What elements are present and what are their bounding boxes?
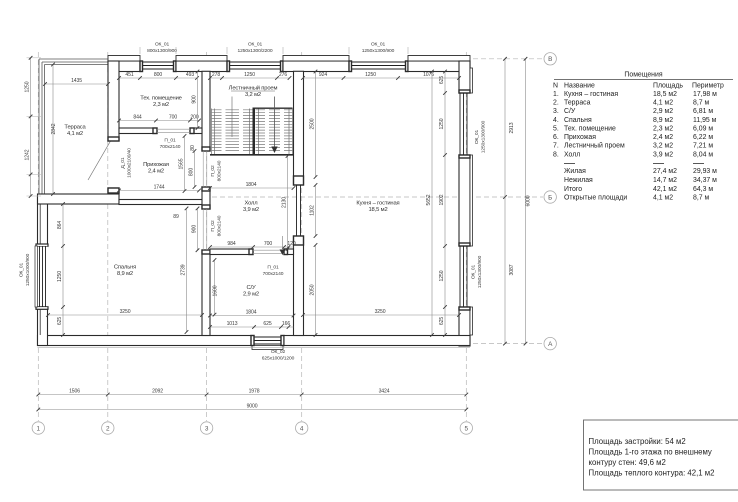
svg-text:844: 844 (133, 115, 141, 121)
svg-text:А: А (548, 341, 553, 348)
svg-text:3: 3 (205, 425, 209, 432)
svg-text:700: 700 (264, 241, 272, 247)
svg-text:1435: 1435 (71, 78, 82, 84)
svg-text:Кухня – гостиная: Кухня – гостиная (356, 201, 399, 207)
svg-text:2,9 м2: 2,9 м2 (653, 108, 673, 115)
svg-text:700: 700 (169, 115, 177, 121)
svg-text:2,3 м2: 2,3 м2 (153, 102, 169, 108)
svg-text:1242: 1242 (25, 149, 31, 160)
svg-text:1250х1300/2200: 1250х1300/2200 (237, 48, 272, 54)
svg-text:Площадь теплого контура: 42,1: Площадь теплого контура: 42,1 м2 (589, 469, 715, 478)
svg-text:1565: 1565 (179, 158, 185, 169)
svg-text:6.: 6. (553, 134, 559, 141)
svg-text:Нежилая: Нежилая (564, 177, 593, 184)
svg-text:29,93 м: 29,93 м (693, 168, 717, 175)
svg-text:1250: 1250 (57, 271, 63, 282)
svg-text:14,7 м2: 14,7 м2 (653, 177, 677, 184)
svg-text:1902: 1902 (439, 194, 445, 205)
svg-text:П_02: П_02 (210, 220, 216, 232)
svg-text:1250: 1250 (244, 72, 255, 78)
svg-text:1804: 1804 (246, 310, 257, 316)
svg-text:Холл: Холл (564, 151, 580, 158)
svg-text:4,1 м2: 4,1 м2 (653, 100, 673, 107)
svg-text:Площадь: Площадь (653, 83, 683, 90)
svg-text:27,4 м2: 27,4 м2 (653, 168, 677, 175)
svg-text:2,9 м2: 2,9 м2 (243, 292, 259, 298)
svg-text:900: 900 (192, 95, 198, 103)
svg-text:N: N (553, 83, 558, 90)
svg-text:1250х1000/900: 1250х1000/900 (25, 253, 31, 286)
svg-text:Б: Б (548, 194, 552, 201)
svg-text:8.: 8. (553, 151, 559, 158)
svg-text:11,95 м: 11,95 м (693, 117, 717, 124)
svg-text:2: 2 (106, 425, 110, 432)
svg-text:3424: 3424 (379, 389, 390, 395)
svg-text:3,2 м2: 3,2 м2 (245, 92, 261, 98)
svg-text:1.: 1. (553, 91, 559, 98)
svg-text:9000: 9000 (247, 404, 258, 410)
svg-text:6,09 м: 6,09 м (693, 125, 713, 132)
svg-text:864: 864 (57, 221, 63, 229)
svg-text:ОК_02: ОК_02 (271, 349, 286, 355)
svg-text:Д_01: Д_01 (120, 157, 126, 168)
svg-text:4.: 4. (553, 117, 559, 124)
svg-text:1250: 1250 (365, 72, 376, 78)
svg-text:6,81 м: 6,81 м (693, 108, 713, 115)
svg-text:Итого: Итого (564, 186, 582, 193)
svg-text:18,5 м2: 18,5 м2 (653, 91, 677, 98)
svg-text:1250х1300/900: 1250х1300/900 (481, 120, 487, 153)
svg-text:1013: 1013 (227, 321, 238, 327)
svg-text:4,1 м2: 4,1 м2 (653, 195, 673, 202)
svg-text:1250: 1250 (439, 270, 445, 281)
svg-text:Кухня – гостиная: Кухня – гостиная (564, 91, 618, 98)
svg-text:6,22 м: 6,22 м (693, 134, 713, 141)
svg-text:1250х1300/900: 1250х1300/900 (362, 48, 395, 54)
svg-text:42,1 м2: 42,1 м2 (653, 186, 677, 193)
svg-text:Площадь 1-го этажа по внешнему: Площадь 1-го этажа по внешнему (589, 448, 712, 457)
svg-text:1804: 1804 (246, 182, 257, 188)
svg-text:625: 625 (439, 317, 445, 325)
svg-text:1102: 1102 (310, 205, 316, 216)
svg-text:2,4 м2: 2,4 м2 (148, 169, 164, 175)
svg-text:800: 800 (154, 72, 162, 78)
svg-text:Холл: Холл (244, 201, 257, 207)
svg-text:Терраса: Терраса (564, 100, 591, 107)
svg-text:Прихожая: Прихожая (564, 134, 596, 141)
svg-text:П_01: П_01 (164, 138, 176, 144)
svg-text:625: 625 (57, 317, 63, 325)
svg-text:Жилая: Жилая (564, 168, 586, 175)
svg-text:Лестничный проем: Лестничный проем (564, 142, 625, 150)
svg-text:1744: 1744 (154, 185, 165, 191)
svg-text:4: 4 (300, 425, 304, 432)
svg-text:Помещения: Помещения (624, 72, 662, 79)
svg-text:89: 89 (173, 214, 179, 220)
svg-text:800х2140: 800х2140 (217, 160, 223, 181)
svg-text:2130: 2130 (282, 197, 288, 208)
svg-text:2913: 2913 (509, 122, 515, 133)
svg-text:ОК_01: ОК_01 (248, 42, 263, 48)
svg-text:1600: 1600 (213, 285, 219, 296)
svg-text:1: 1 (37, 425, 41, 432)
svg-text:1250: 1250 (25, 81, 31, 92)
svg-text:18,5 м2: 18,5 м2 (368, 207, 387, 213)
svg-text:5: 5 (465, 425, 469, 432)
svg-text:ОК_01: ОК_01 (371, 42, 386, 48)
svg-text:924: 924 (319, 72, 327, 78)
svg-text:1250х1300/900: 1250х1300/900 (477, 255, 483, 288)
svg-text:3250: 3250 (375, 309, 386, 315)
svg-text:Тех. помещение: Тех. помещение (564, 125, 616, 132)
svg-text:278: 278 (212, 72, 220, 78)
svg-text:800х1300/900: 800х1300/900 (147, 48, 177, 54)
svg-text:2739: 2739 (181, 264, 187, 275)
svg-text:С/У: С/У (564, 108, 576, 115)
svg-text:Название: Название (564, 83, 595, 90)
svg-text:В: В (548, 56, 552, 63)
svg-text:900: 900 (192, 225, 198, 233)
svg-text:8,7 м: 8,7 м (693, 100, 709, 107)
svg-text:Тех. помещение: Тех. помещение (140, 96, 182, 102)
svg-text:276: 276 (279, 72, 287, 78)
svg-text:80: 80 (190, 145, 196, 151)
svg-text:34,37 м: 34,37 м (693, 177, 717, 184)
svg-text:1000х2100/40: 1000х2100/40 (127, 148, 133, 178)
svg-text:1506: 1506 (69, 389, 80, 395)
svg-text:П_01: П_01 (267, 265, 279, 271)
svg-text:ОК_01: ОК_01 (155, 42, 170, 48)
svg-text:625: 625 (263, 321, 271, 327)
svg-text:166: 166 (282, 321, 290, 327)
svg-text:2092: 2092 (152, 389, 163, 395)
svg-text:64,3 м: 64,3 м (693, 186, 713, 193)
svg-text:625: 625 (439, 76, 445, 84)
svg-text:6000: 6000 (525, 195, 531, 206)
svg-text:2,4 м2: 2,4 м2 (653, 134, 673, 141)
svg-text:П_02: П_02 (210, 165, 216, 177)
svg-text:1076: 1076 (423, 72, 434, 78)
svg-text:8,9 м2: 8,9 м2 (117, 271, 133, 277)
svg-text:451: 451 (125, 72, 133, 78)
svg-text:2500: 2500 (310, 118, 316, 129)
svg-text:С/У: С/У (246, 285, 255, 291)
svg-text:7.: 7. (553, 143, 559, 150)
svg-text:3,2 м2: 3,2 м2 (653, 143, 673, 150)
svg-text:ОК_01: ОК_01 (19, 262, 25, 277)
svg-text:17,98 м: 17,98 м (693, 91, 717, 98)
svg-text:Спальня: Спальня (114, 265, 136, 271)
svg-text:1250: 1250 (439, 118, 445, 129)
svg-text:800х2140: 800х2140 (217, 215, 223, 236)
svg-text:3,9 м2: 3,9 м2 (243, 207, 259, 213)
svg-text:5.: 5. (553, 125, 559, 132)
svg-text:Лестничный проем: Лестничный проем (229, 85, 278, 92)
svg-text:Терраса: Терраса (64, 125, 86, 131)
svg-text:Периметр: Периметр (692, 83, 724, 90)
svg-text:Прихожая: Прихожая (143, 162, 169, 168)
svg-text:120: 120 (287, 241, 295, 247)
svg-text:ОК_01: ОК_01 (471, 264, 477, 279)
svg-text:3,9 м2: 3,9 м2 (653, 151, 673, 158)
svg-text:3.: 3. (553, 108, 559, 115)
svg-text:8,9 м2: 8,9 м2 (653, 117, 673, 124)
svg-text:800: 800 (189, 168, 195, 176)
svg-text:5652: 5652 (426, 194, 432, 205)
svg-text:493: 493 (186, 72, 194, 78)
svg-text:контуру стен: 49,6 м2: контуру стен: 49,6 м2 (589, 458, 666, 467)
svg-text:2,3 м2: 2,3 м2 (653, 125, 673, 132)
svg-text:ОК_01: ОК_01 (474, 129, 480, 144)
svg-text:3250: 3250 (120, 309, 131, 315)
svg-text:700х2140: 700х2140 (263, 271, 284, 277)
svg-text:2.: 2. (553, 100, 559, 107)
svg-text:7,21 м: 7,21 м (693, 143, 713, 150)
svg-text:2050: 2050 (310, 284, 316, 295)
svg-text:3087: 3087 (509, 264, 515, 275)
svg-text:Площадь застройки: 54 м2: Площадь застройки: 54 м2 (589, 437, 686, 446)
svg-text:625х1000/1200: 625х1000/1200 (262, 356, 295, 362)
svg-text:2842: 2842 (51, 123, 57, 134)
svg-text:700х2140: 700х2140 (160, 144, 181, 150)
svg-text:1978: 1978 (249, 389, 260, 395)
svg-text:Спальня: Спальня (564, 117, 592, 124)
svg-text:984: 984 (227, 241, 235, 247)
svg-text:4,1 м2: 4,1 м2 (67, 131, 83, 137)
svg-text:8,04 м: 8,04 м (693, 151, 713, 158)
svg-text:Открытые площади: Открытые площади (564, 195, 627, 202)
svg-text:8,7 м: 8,7 м (693, 195, 709, 202)
